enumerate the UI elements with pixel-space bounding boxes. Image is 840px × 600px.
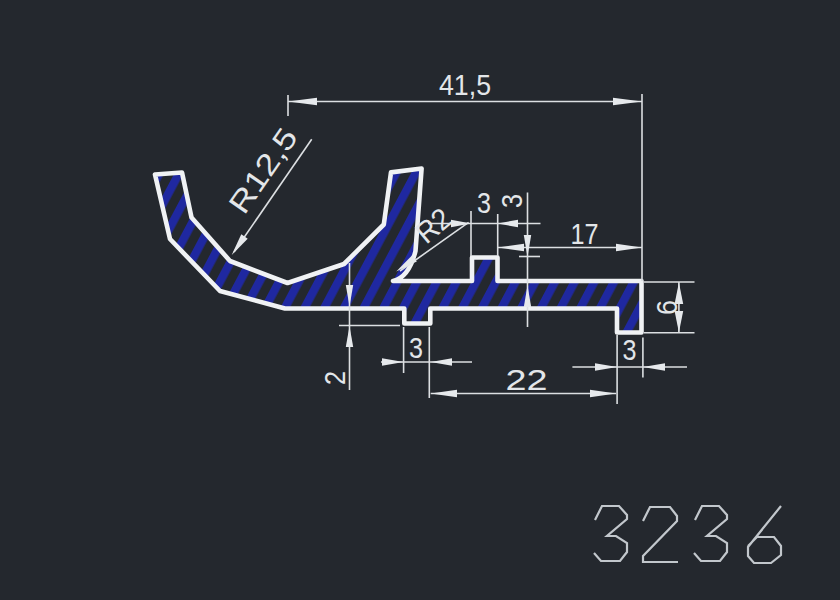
svg-text:22: 22 [506, 363, 548, 396]
svg-text:R12,5: R12,5 [222, 122, 304, 220]
svg-text:6: 6 [650, 300, 683, 315]
svg-text:3: 3 [477, 186, 491, 219]
svg-text:17: 17 [571, 217, 599, 250]
svg-text:3: 3 [623, 333, 637, 366]
svg-text:3: 3 [409, 331, 423, 364]
svg-text:41,5: 41,5 [439, 68, 491, 101]
svg-text:2: 2 [318, 371, 351, 385]
svg-text:3: 3 [495, 194, 528, 208]
